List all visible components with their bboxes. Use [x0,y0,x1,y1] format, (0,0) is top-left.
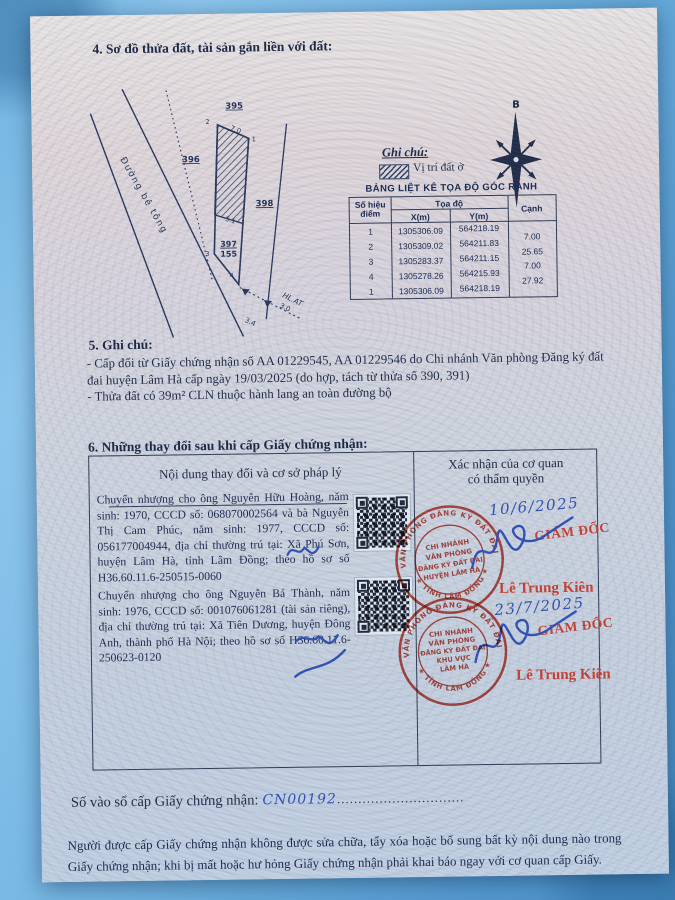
y-cell: 564218.19 [450,223,508,234]
x-cell: 1305309.02 [391,241,450,252]
office-stamp-2: VĂN PHÒNG ĐĂNG KÝ ĐẤT ĐAI ★ TỈNH LÂM ĐỒN… [388,587,517,716]
point-cell: 4 [351,271,392,282]
corner-2-label: 2 [205,118,209,126]
edge-cell: 7.00 [508,260,556,271]
legend-heading: Ghi chú: [382,145,428,161]
serial-row: Số vào sổ cấp Giấy chứng nhận: CN00192..… [71,788,465,811]
pen-mark-1 [284,540,320,567]
col-x-header: X(m) [391,211,450,222]
dotted-leader: .............................. [337,789,465,806]
serial-value: CN00192 [262,791,337,808]
compass-north-label: B [512,100,520,111]
legend-residential-label: Vị trí đất ở [413,161,464,174]
y-cell: 564211.15 [450,253,508,264]
dim-arrow-left [242,288,250,295]
corner-3-label: 3 [205,250,209,258]
edge-cell: 27.92 [509,275,557,286]
residential-hatched-area [214,124,250,223]
dim-30-label: 3.0 [278,302,292,314]
signature-1 [464,509,587,581]
x-cell: 1305306.09 [392,286,451,297]
col-point-header: Số hiệuđiểm [350,200,391,219]
dim-34-label: 3.4 [243,316,257,328]
serial-label: Số vào sổ cấp Giấy chứng nhận: [71,792,259,811]
edge-cell: 7.00 [508,231,556,242]
footer-notice: Người được cấp Giấy chứng nhận không đượ… [67,827,622,877]
point-cell: 1 [350,226,391,237]
confirmation-2-name: Lê Trung Kiên [516,666,611,684]
y-cell: 564218.19 [451,283,509,294]
col-edge-header: Cạnh [508,203,556,214]
change-entry-1: Chuyển nhượng cho ông Nguyễn Hữu Hoàng, … [97,489,350,586]
col-coord-header: Tọa độ [391,198,508,210]
point-cell: 2 [350,241,391,252]
edge-cell: 25.65 [508,246,556,257]
plot-area-label: 155 [220,250,237,259]
corner-4-label: 4 [230,272,234,280]
plot-number-label: 397 [220,240,237,249]
residential-hatch-swatch-icon [379,164,409,179]
corner-1-label: 1 [252,135,256,143]
road-label: Đường bê tông [117,155,170,236]
point-cell: 3 [350,256,391,267]
section4-title: 4. Sơ đồ thửa đất, tài sản gắn liền với … [92,38,332,57]
parcel-396-label: 396 [182,155,200,165]
pen-mark-2 [291,630,352,683]
y-cell: 564211.83 [450,238,508,249]
x-cell: 1305278.26 [392,271,451,282]
parcel-398-label: 398 [256,199,274,209]
coordinate-table: Số hiệuđiểm Tọa độ X(m) Y(m) Cạnh 1 1305… [349,194,558,300]
certificate-page: 4. Sơ đồ thửa đất, tài sản gắn liền với … [30,8,669,883]
y-cell: 564215.93 [451,268,509,279]
parcel-395-label: 395 [225,101,243,111]
x-cell: 1305306.09 [391,226,450,237]
col-y-header: Y(m) [450,210,508,221]
land-plot-diagram: Đường bê tông 395 396 398 397 155 2 1 3 … [73,78,352,352]
dim-mid-label: 5.1 [224,215,236,226]
x-cell: 1305283.37 [391,256,450,267]
section5-title: 5. Ghi chú: [88,337,152,354]
point-cell: 1 [351,286,392,297]
changes-col2-header: Xác nhận của cơ quancó thẩm quyền [418,455,593,487]
